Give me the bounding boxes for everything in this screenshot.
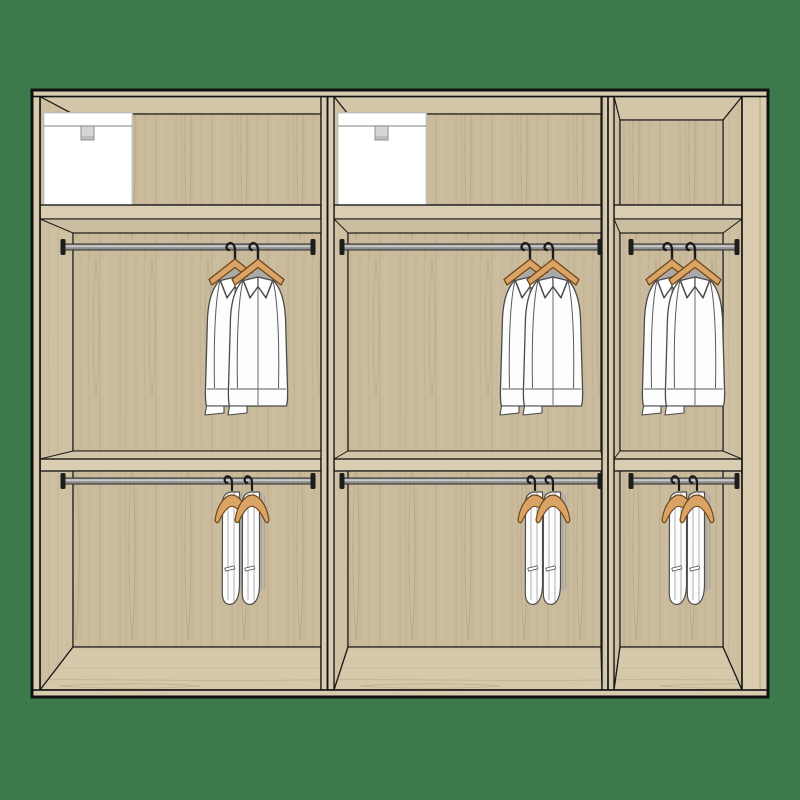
- rail-bracket-right: [735, 473, 740, 489]
- back-panel-bottom: [73, 471, 321, 647]
- shelf-middle: [614, 459, 742, 471]
- shelf-middle: [40, 459, 321, 471]
- rail-bracket-left: [61, 239, 66, 255]
- shelf-top: [40, 205, 321, 219]
- ceiling-face: [334, 97, 602, 115]
- wardrobe: [32, 90, 768, 697]
- ceiling-face: [40, 97, 321, 115]
- shelf-top-face: [614, 451, 742, 459]
- shelf-top-face: [334, 451, 602, 459]
- floor-face: [614, 647, 742, 690]
- wardrobe-illustration: [0, 0, 800, 800]
- rail-bracket-left: [629, 473, 634, 489]
- back-panel-top: [620, 120, 723, 205]
- shelf-underside-face: [614, 219, 742, 233]
- shelf-top-face: [40, 451, 321, 459]
- rail-bracket-right: [311, 473, 316, 489]
- storage-box: [44, 113, 133, 207]
- floor-face: [40, 647, 321, 690]
- floor-face: [334, 647, 602, 690]
- left-side-panel-face: [614, 97, 620, 691]
- section-left: [40, 97, 321, 691]
- ceiling-face: [614, 97, 742, 121]
- divider-middle-right: [602, 97, 614, 691]
- shelf-middle: [334, 459, 602, 471]
- section-middle: [334, 97, 603, 691]
- shelf-top: [614, 205, 742, 219]
- shelf-top: [334, 205, 602, 219]
- section-right: [614, 97, 742, 691]
- rail-bracket-left: [340, 239, 345, 255]
- shelf-underside-face: [334, 219, 602, 233]
- shelf-underside-face: [40, 219, 321, 233]
- outer-right-panel: [742, 90, 768, 697]
- rail-bracket-right: [735, 239, 740, 255]
- rail-bracket-left: [629, 239, 634, 255]
- divider-left-middle: [321, 97, 334, 691]
- rail-bracket-left: [61, 473, 66, 489]
- rail-bracket-left: [340, 473, 345, 489]
- right-side-panel-face: [723, 97, 742, 691]
- rail-bracket-right: [311, 239, 316, 255]
- storage-box: [338, 113, 427, 207]
